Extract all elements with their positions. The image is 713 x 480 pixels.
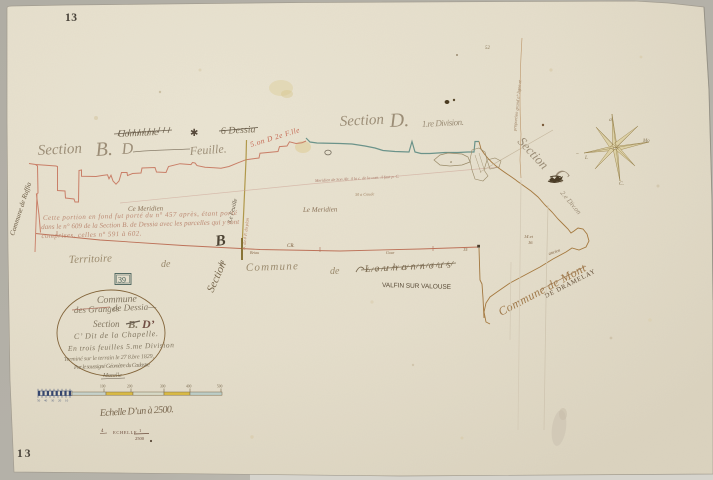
svg-text:Section: Section <box>37 141 82 159</box>
svg-text:2500: 2500 <box>135 436 145 441</box>
svg-text:~: ~ <box>576 152 579 157</box>
svg-text:de Dessia—: de Dessia— <box>113 301 158 313</box>
svg-text:Gour: Gour <box>386 250 395 255</box>
svg-text:300: 300 <box>160 385 166 389</box>
svg-text:20: 20 <box>58 399 62 403</box>
svg-text:✱: ✱ <box>190 128 198 139</box>
svg-text:D: D <box>120 140 134 158</box>
svg-text:C.: C. <box>619 181 624 187</box>
svg-text:ECHELLE: ECHELLE <box>113 430 137 435</box>
svg-text:de: de <box>161 259 171 270</box>
svg-text:40: 40 <box>44 399 48 403</box>
svg-text:13: 13 <box>65 12 78 24</box>
svg-text:16: 16 <box>528 240 533 245</box>
svg-text:Territoire: Territoire <box>69 253 113 266</box>
svg-text:de: de <box>330 266 340 277</box>
svg-text:a: a <box>609 117 612 123</box>
svg-text:Section: Section <box>93 319 120 329</box>
svg-text:CR.: CR. <box>287 244 295 249</box>
svg-text:500: 500 <box>217 385 223 389</box>
svg-text:400: 400 <box>186 385 192 389</box>
svg-text:L: L <box>584 156 588 161</box>
svg-text:200: 200 <box>127 385 133 389</box>
svg-text:B.: B. <box>95 138 114 161</box>
svg-text:50: 50 <box>37 399 41 403</box>
svg-text:30 a Coude: 30 a Coude <box>355 191 375 197</box>
svg-text:Section: Section <box>339 112 384 130</box>
svg-text:100: 100 <box>100 385 106 389</box>
svg-text:Mo: Mo <box>642 139 650 144</box>
svg-text:39: 39 <box>118 276 126 285</box>
svg-text:1: 1 <box>139 428 141 433</box>
svg-text:13: 13 <box>17 448 33 460</box>
svg-text:B: B <box>213 232 227 250</box>
svg-text:Briau: Briau <box>250 250 259 255</box>
svg-text:52: 52 <box>485 46 491 51</box>
svg-text:14 et: 14 et <box>524 234 534 239</box>
svg-text:10: 10 <box>65 399 69 403</box>
svg-text:15: 15 <box>463 247 468 252</box>
svg-text:Feuille.: Feuille. <box>188 141 227 158</box>
svg-text:30: 30 <box>51 399 55 403</box>
svg-text:Le Meridien: Le Meridien <box>302 205 338 214</box>
svg-text:D.: D. <box>388 109 410 132</box>
